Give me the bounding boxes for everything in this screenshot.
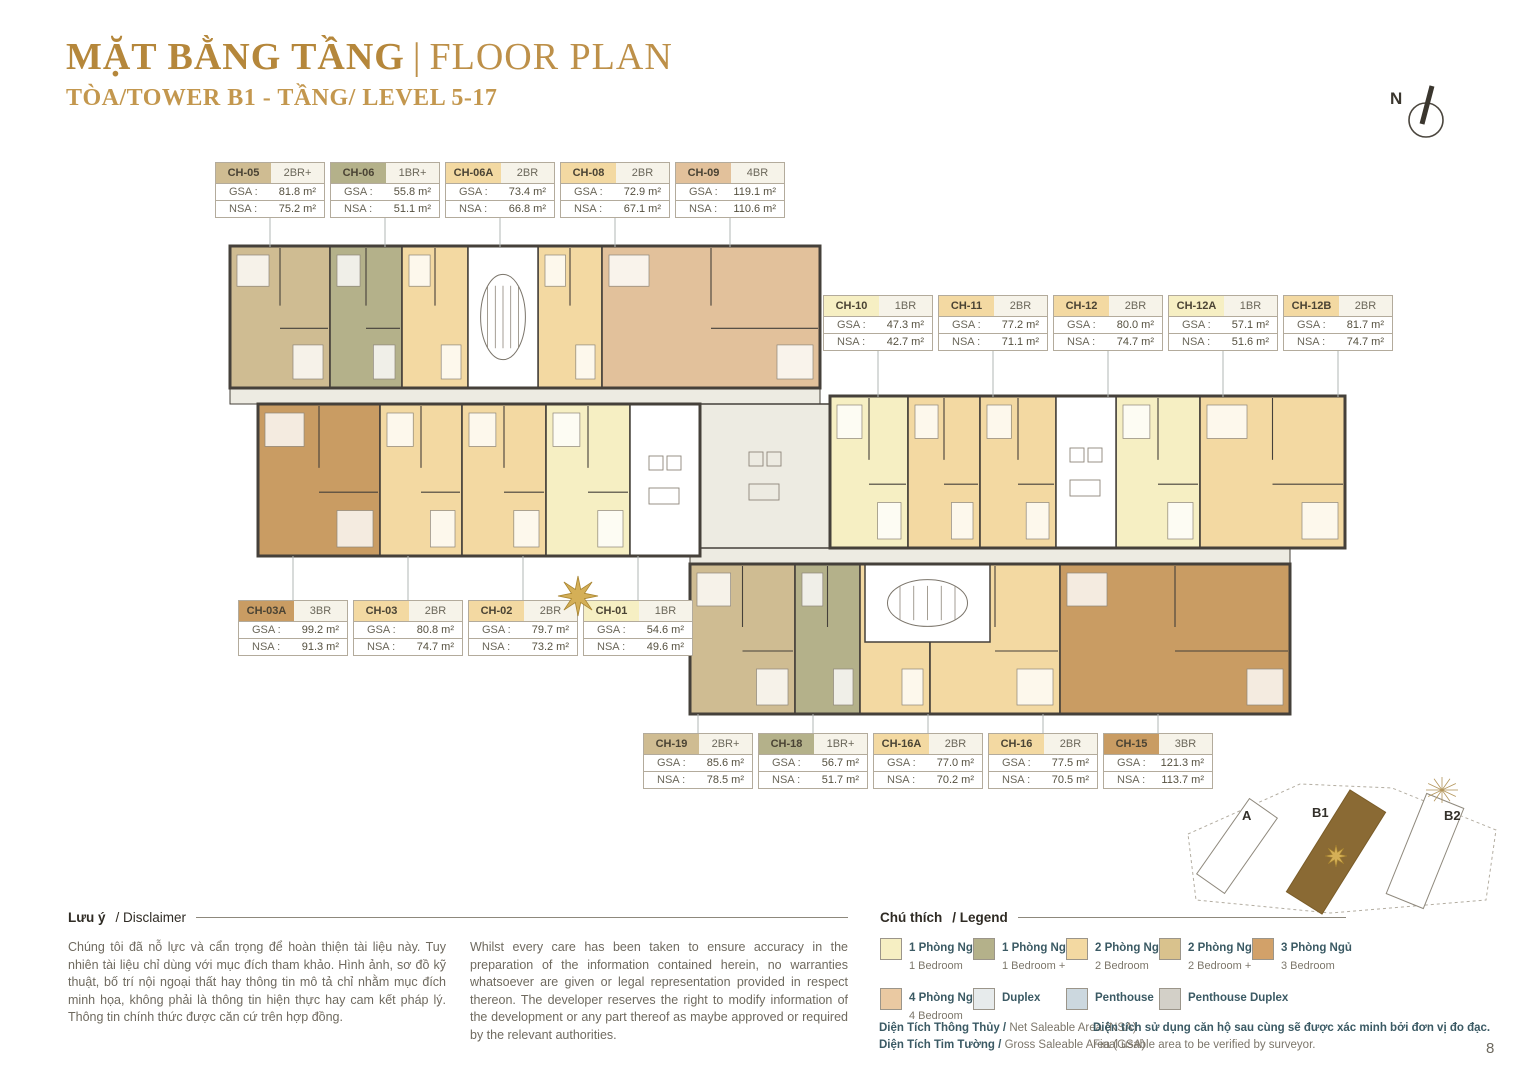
unit-gsa-row: GSA :99.2 m² — [239, 621, 347, 638]
unit-type: 2BR — [409, 601, 462, 621]
unit-type: 1BR — [1224, 296, 1277, 316]
unit-code: CH-09 — [676, 163, 731, 183]
unit-code: CH-19 — [644, 734, 699, 754]
unit-gsa-row: GSA :72.9 m² — [561, 183, 669, 200]
unit-code: CH-08 — [561, 163, 616, 183]
unit-card-head: CH-162BR — [989, 734, 1097, 754]
survey-note-en: Final usable area to be verified by surv… — [1093, 1037, 1523, 1054]
legend-item: 2 Phòng Ngủ +2 Bedroom + — [1159, 938, 1252, 974]
unit-card-head: CH-192BR+ — [644, 734, 752, 754]
unit-card-head: CH-122BR — [1054, 296, 1162, 316]
legend-swatch — [973, 938, 995, 960]
unit-card-CH-12A: CH-12A1BRGSA :57.1 m²NSA :51.6 m² — [1168, 295, 1278, 351]
unit-gsa-row: GSA :79.7 m² — [469, 621, 577, 638]
minimap-b1-star-icon — [1325, 845, 1347, 867]
unit-card-CH-05: CH-052BR+GSA :81.8 m²NSA :75.2 m² — [215, 162, 325, 218]
unit-nsa-row: NSA :74.7 m² — [1284, 333, 1392, 350]
unit-gsa-row: GSA :55.8 m² — [331, 183, 439, 200]
unit-card-head: CH-03A3BR — [239, 601, 347, 621]
legend-swatch — [1252, 938, 1274, 960]
unit-card-head: CH-12A1BR — [1169, 296, 1277, 316]
legend-item: 4 Phòng Ngủ4 Bedroom — [880, 988, 973, 1024]
card-row-right: CH-101BRGSA :47.3 m²NSA :42.7 m²CH-112BR… — [823, 295, 1393, 351]
plan-unit-CH-10 — [830, 396, 908, 548]
unit-code: CH-15 — [1104, 734, 1159, 754]
highlight-star-icon — [556, 574, 600, 618]
unit-nsa-row: NSA :91.3 m² — [239, 638, 347, 655]
unit-type: 2BR+ — [699, 734, 752, 754]
legend-item: 2 Phòng Ngủ2 Bedroom — [1066, 938, 1159, 974]
legend-item: Penthouse — [1066, 988, 1159, 1024]
plan-corridor — [230, 388, 820, 404]
legend-swatch — [1159, 938, 1181, 960]
legend-swatch — [1066, 938, 1088, 960]
disclaimer-heading-en: / Disclaimer — [116, 910, 187, 925]
unit-nsa-row: NSA :70.2 m² — [874, 771, 982, 788]
unit-card-head: CH-06A2BR — [446, 163, 554, 183]
legend-item: 1 Phòng Ngủ1 Bedroom — [880, 938, 973, 974]
unit-gsa-row: GSA :119.1 m² — [676, 183, 784, 200]
plan-service-core — [700, 404, 830, 548]
unit-code: CH-05 — [216, 163, 271, 183]
unit-type: 2BR — [929, 734, 982, 754]
plan-unit-CH-08 — [538, 246, 602, 388]
unit-card-CH-19: CH-192BR+GSA :85.6 m²NSA :78.5 m² — [643, 733, 753, 789]
legend-swatch — [1159, 988, 1181, 1010]
plan-unit-CH-18 — [795, 564, 860, 714]
unit-nsa-row: NSA :78.5 m² — [644, 771, 752, 788]
unit-nsa-row: NSA :51.7 m² — [759, 771, 867, 788]
plan-unit-CH-03A — [258, 404, 380, 556]
unit-card-CH-09: CH-094BRGSA :119.1 m²NSA :110.6 m² — [675, 162, 785, 218]
unit-code: CH-02 — [469, 601, 524, 621]
unit-card-CH-06: CH-061BR+GSA :55.8 m²NSA :51.1 m² — [330, 162, 440, 218]
plan-unit-CH-09 — [602, 246, 820, 388]
unit-gsa-row: GSA :54.6 m² — [584, 621, 692, 638]
card-row-top: CH-052BR+GSA :81.8 m²NSA :75.2 m²CH-061B… — [215, 162, 785, 218]
plan-unit-CH-01 — [546, 404, 630, 556]
site-minimap: A B1 B2 — [1180, 772, 1510, 922]
unit-type: 1BR+ — [814, 734, 867, 754]
page-number: 8 — [1486, 1040, 1494, 1057]
unit-nsa-row: NSA :51.6 m² — [1169, 333, 1277, 350]
unit-code: CH-18 — [759, 734, 814, 754]
unit-card-CH-10: CH-101BRGSA :47.3 m²NSA :42.7 m² — [823, 295, 933, 351]
unit-code: CH-06 — [331, 163, 386, 183]
unit-card-CH-18: CH-181BR+GSA :56.7 m²NSA :51.7 m² — [758, 733, 868, 789]
plan-stair-core — [865, 564, 990, 642]
unit-nsa-row: NSA :67.1 m² — [561, 200, 669, 217]
unit-type: 1BR+ — [386, 163, 439, 183]
unit-card-head: CH-153BR — [1104, 734, 1212, 754]
legend-item: Penthouse Duplex — [1159, 988, 1252, 1024]
survey-note-vn: Diện tích sử dụng căn hộ sau cùng sẽ đượ… — [1093, 1020, 1523, 1037]
unit-type: 2BR — [1339, 296, 1392, 316]
unit-gsa-row: GSA :121.3 m² — [1104, 754, 1212, 771]
disclaimer-section: Lưu ý / Disclaimer Chúng tôi đã nỗ lực v… — [68, 910, 848, 1044]
unit-code: CH-12 — [1054, 296, 1109, 316]
card-row-middle: CH-03A3BRGSA :99.2 m²NSA :91.3 m²CH-032B… — [238, 600, 693, 656]
title-vietnamese: MẶT BẰNG TẦNG — [66, 36, 405, 78]
unit-code: CH-03 — [354, 601, 409, 621]
unit-type: 2BR — [994, 296, 1047, 316]
unit-gsa-row: GSA :56.7 m² — [759, 754, 867, 771]
page-subtitle: TÒA/TOWER B1 - TẦNG/ LEVEL 5-17 — [66, 85, 673, 112]
legend-grid: 1 Phòng Ngủ1 Bedroom1 Phòng Ngủ +1 Bedro… — [880, 938, 1346, 1024]
unit-code: CH-11 — [939, 296, 994, 316]
unit-code: CH-16A — [874, 734, 929, 754]
unit-code: CH-12A — [1169, 296, 1224, 316]
unit-gsa-row: GSA :80.8 m² — [354, 621, 462, 638]
plan-service-core — [630, 404, 700, 556]
plan-unit-CH-12 — [980, 396, 1056, 548]
unit-nsa-row: NSA :74.7 m² — [354, 638, 462, 655]
minimap-label-b2: B2 — [1444, 808, 1461, 823]
unit-nsa-row: NSA :42.7 m² — [824, 333, 932, 350]
unit-card-CH-03: CH-032BRGSA :80.8 m²NSA :74.7 m² — [353, 600, 463, 656]
unit-type: 2BR — [616, 163, 669, 183]
unit-nsa-row: NSA :110.6 m² — [676, 200, 784, 217]
unit-card-CH-06A: CH-06A2BRGSA :73.4 m²NSA :66.8 m² — [445, 162, 555, 218]
plan-unit-CH-12B — [1200, 396, 1345, 548]
unit-card-CH-16: CH-162BRGSA :77.5 m²NSA :70.5 m² — [988, 733, 1098, 789]
survey-note: Diện tích sử dụng căn hộ sau cùng sẽ đượ… — [1093, 1020, 1523, 1055]
unit-card-head: CH-12B2BR — [1284, 296, 1392, 316]
unit-nsa-row: NSA :73.2 m² — [469, 638, 577, 655]
title-english: FLOOR PLAN — [429, 36, 672, 78]
unit-gsa-row: GSA :77.0 m² — [874, 754, 982, 771]
unit-code: CH-16 — [989, 734, 1044, 754]
unit-card-CH-03A: CH-03A3BRGSA :99.2 m²NSA :91.3 m² — [238, 600, 348, 656]
unit-card-head: CH-181BR+ — [759, 734, 867, 754]
disclaimer-text-english: Whilst every care has been taken to ensu… — [470, 939, 848, 1044]
legend-item: 1 Phòng Ngủ +1 Bedroom + — [973, 938, 1066, 974]
north-label: N — [1390, 89, 1402, 108]
plan-unit-CH-19 — [690, 564, 795, 714]
unit-type: 2BR+ — [271, 163, 324, 183]
plan-unit-CH-15 — [1060, 564, 1290, 714]
unit-type: 1BR — [639, 601, 692, 621]
unit-code: CH-12B — [1284, 296, 1339, 316]
building-a-outline — [1197, 799, 1278, 894]
disclaimer-rule — [196, 917, 848, 918]
unit-gsa-row: GSA :81.8 m² — [216, 183, 324, 200]
unit-gsa-row: GSA :85.6 m² — [644, 754, 752, 771]
unit-type: 1BR — [879, 296, 932, 316]
unit-nsa-row: NSA :74.7 m² — [1054, 333, 1162, 350]
legend-swatch — [973, 988, 995, 1010]
unit-type: 3BR — [1159, 734, 1212, 754]
plan-unit-CH-06A — [402, 246, 468, 388]
plan-unit-CH-11 — [908, 396, 980, 548]
plan-service-core — [1056, 396, 1116, 548]
plan-unit-CH-06 — [330, 246, 402, 388]
unit-nsa-row: NSA :49.6 m² — [584, 638, 692, 655]
unit-card-head: CH-052BR+ — [216, 163, 324, 183]
north-indicator: N — [1378, 64, 1478, 156]
unit-card-head: CH-032BR — [354, 601, 462, 621]
unit-nsa-row: NSA :70.5 m² — [989, 771, 1097, 788]
page-header: MẶT BẰNG TẦNG|FLOOR PLAN TÒA/TOWER B1 - … — [66, 38, 673, 112]
disclaimer-heading: Lưu ý / Disclaimer — [68, 910, 848, 925]
legend-swatch — [880, 938, 902, 960]
unit-card-CH-12: CH-122BRGSA :80.0 m²NSA :74.7 m² — [1053, 295, 1163, 351]
plan-unit-CH-05 — [230, 246, 330, 388]
unit-gsa-row: GSA :57.1 m² — [1169, 316, 1277, 333]
plan-unit-CH-03 — [380, 404, 462, 556]
unit-card-head: CH-061BR+ — [331, 163, 439, 183]
unit-gsa-row: GSA :77.5 m² — [989, 754, 1097, 771]
unit-card-CH-11: CH-112BRGSA :77.2 m²NSA :71.1 m² — [938, 295, 1048, 351]
unit-type: 2BR — [1044, 734, 1097, 754]
unit-nsa-row: NSA :51.1 m² — [331, 200, 439, 217]
unit-card-CH-08: CH-082BRGSA :72.9 m²NSA :67.1 m² — [560, 162, 670, 218]
plan-unit-CH-12A — [1116, 396, 1200, 548]
unit-gsa-row: GSA :81.7 m² — [1284, 316, 1392, 333]
unit-card-head: CH-082BR — [561, 163, 669, 183]
page-title: MẶT BẰNG TẦNG|FLOOR PLAN — [66, 38, 673, 78]
legend-item: 3 Phòng Ngủ3 Bedroom — [1252, 938, 1345, 974]
unit-card-head: CH-011BR — [584, 601, 692, 621]
title-separator: | — [413, 36, 422, 78]
minimap-label-b1: B1 — [1312, 805, 1329, 820]
unit-type: 3BR — [294, 601, 347, 621]
unit-gsa-row: GSA :77.2 m² — [939, 316, 1047, 333]
legend-item: Duplex — [973, 988, 1066, 1024]
legend-heading-en: / Legend — [952, 910, 1008, 925]
legend-rule — [1018, 917, 1346, 918]
unit-card-head: CH-094BR — [676, 163, 784, 183]
unit-nsa-row: NSA :66.8 m² — [446, 200, 554, 217]
unit-gsa-row: GSA :47.3 m² — [824, 316, 932, 333]
unit-gsa-row: GSA :73.4 m² — [446, 183, 554, 200]
unit-nsa-row: NSA :71.1 m² — [939, 333, 1047, 350]
unit-code: CH-06A — [446, 163, 501, 183]
plan-corridor — [690, 548, 1290, 564]
unit-code: CH-03A — [239, 601, 294, 621]
minimap-label-a: A — [1242, 808, 1252, 823]
unit-card-CH-16A: CH-16A2BRGSA :77.0 m²NSA :70.2 m² — [873, 733, 983, 789]
legend-heading: Chú thích / Legend — [880, 910, 1346, 925]
nsa-label-vn: Diện Tích Thông Thủy / — [879, 1022, 1006, 1034]
unit-nsa-row: NSA :75.2 m² — [216, 200, 324, 217]
disclaimer-text-vietnamese: Chúng tôi đã nỗ lực và cẩn trọng để hoàn… — [68, 939, 446, 1044]
unit-type: 2BR — [1109, 296, 1162, 316]
unit-card-CH-12B: CH-12B2BRGSA :81.7 m²NSA :74.7 m² — [1283, 295, 1393, 351]
plan-unit-CH-02 — [462, 404, 546, 556]
legend-section: Chú thích / Legend 1 Phòng Ngủ1 Bedroom1… — [880, 910, 1346, 1024]
unit-card-head: CH-16A2BR — [874, 734, 982, 754]
unit-type: 2BR — [501, 163, 554, 183]
unit-type: 4BR — [731, 163, 784, 183]
unit-card-head: CH-101BR — [824, 296, 932, 316]
unit-code: CH-10 — [824, 296, 879, 316]
unit-gsa-row: GSA :80.0 m² — [1054, 316, 1162, 333]
north-needle-icon — [1422, 86, 1432, 124]
legend-swatch — [880, 988, 902, 1010]
gsa-label-vn: Diện Tích Tim Tường / — [879, 1039, 1001, 1051]
card-row-bottom: CH-192BR+GSA :85.6 m²NSA :78.5 m²CH-181B… — [643, 733, 1213, 789]
legend-heading-vn: Chú thích — [880, 910, 942, 925]
legend-swatch — [1066, 988, 1088, 1010]
plan-stair-core — [468, 246, 538, 388]
unit-card-head: CH-112BR — [939, 296, 1047, 316]
disclaimer-heading-vn: Lưu ý — [68, 910, 106, 925]
